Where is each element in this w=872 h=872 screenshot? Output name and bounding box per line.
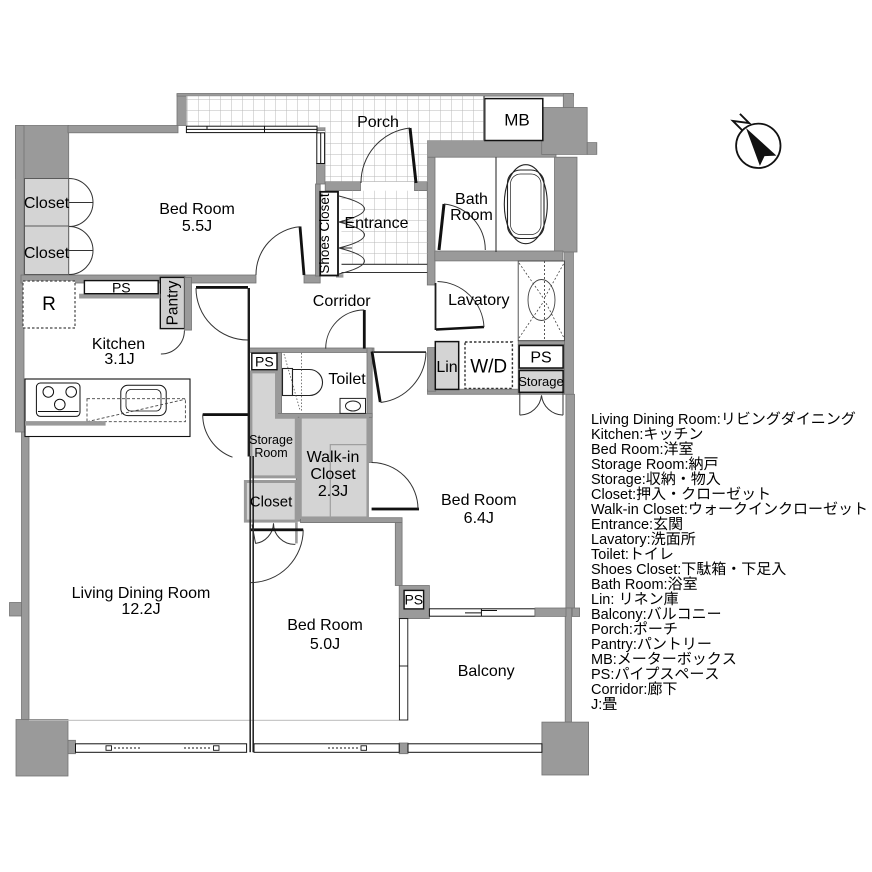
svg-text:Bed Room: Bed Room (287, 617, 363, 634)
svg-text:6.4J: 6.4J (464, 510, 494, 527)
svg-text:Balcony: Balcony (458, 663, 515, 680)
svg-text:3.1J: 3.1J (104, 351, 134, 368)
svg-text:Closet: Closet (24, 245, 70, 262)
svg-text:Walk-in Closet:: Walk-in Closet: (591, 502, 688, 518)
svg-text:Balcony:: Balcony: (591, 607, 647, 623)
svg-text:Bath: Bath (455, 191, 488, 208)
svg-text:Shoes Closet:: Shoes Closet: (591, 562, 681, 578)
svg-text:2.3J: 2.3J (318, 483, 348, 500)
svg-text:PS: PS (112, 279, 131, 295)
svg-text:Storage:: Storage: (591, 472, 646, 488)
svg-text:W/D: W/D (470, 357, 507, 378)
svg-text:Closet: Closet (310, 466, 356, 483)
svg-text:Room: Room (254, 446, 287, 460)
svg-text:MB:: MB: (591, 652, 617, 668)
svg-text:PS: PS (530, 350, 551, 367)
svg-text:J:: J: (591, 697, 602, 713)
svg-text:PS: PS (404, 592, 423, 608)
svg-text:Porch: Porch (357, 114, 399, 131)
svg-text:Room: Room (450, 207, 493, 224)
svg-text:Lin:: Lin: (591, 592, 614, 608)
svg-text:5.5J: 5.5J (182, 218, 212, 235)
svg-text:Bed Room: Bed Room (159, 201, 235, 218)
svg-text:MB: MB (504, 111, 530, 130)
svg-text:Pantry: Pantry (165, 280, 182, 325)
svg-text:Pantry:: Pantry: (591, 637, 637, 653)
svg-text:Corridor:: Corridor: (591, 682, 647, 698)
svg-text:Bath Room:: Bath Room: (591, 577, 668, 593)
svg-text:Lavatory: Lavatory (448, 292, 509, 309)
svg-text:Closet: Closet (250, 494, 293, 511)
svg-text:Toilet:: Toilet: (591, 547, 629, 563)
svg-text:Living Dining Room:: Living Dining Room: (591, 412, 721, 428)
svg-text:Storage: Storage (249, 433, 293, 447)
svg-text:Lin: Lin (436, 359, 457, 376)
svg-text:Entrance:: Entrance: (591, 517, 653, 533)
svg-text:Storage: Storage (518, 374, 564, 389)
svg-text:Toilet: Toilet (328, 371, 366, 388)
svg-text:Shoes Closet: Shoes Closet (317, 193, 332, 274)
svg-text:Corridor: Corridor (313, 293, 371, 310)
svg-text:R: R (42, 294, 56, 315)
svg-text:5.0J: 5.0J (310, 636, 340, 653)
svg-text:Living Dining Room: Living Dining Room (72, 585, 211, 602)
svg-text:Lavatory:: Lavatory: (591, 532, 651, 548)
svg-text:Bed Room: Bed Room (441, 492, 517, 509)
svg-text:Walk-in: Walk-in (307, 449, 360, 466)
svg-text:PS:: PS: (591, 667, 614, 683)
svg-text:Kitchen:: Kitchen: (591, 427, 643, 443)
svg-text:Closet: Closet (24, 195, 70, 212)
svg-text:PS: PS (255, 354, 274, 370)
svg-text:Bed Room:: Bed Room: (591, 442, 664, 458)
svg-text:Entrance: Entrance (344, 215, 408, 232)
svg-text:Storage Room:: Storage Room: (591, 457, 689, 473)
svg-text:12.2J: 12.2J (121, 601, 160, 618)
svg-text:Porch:: Porch: (591, 622, 633, 638)
svg-text:Closet:: Closet: (591, 487, 636, 503)
